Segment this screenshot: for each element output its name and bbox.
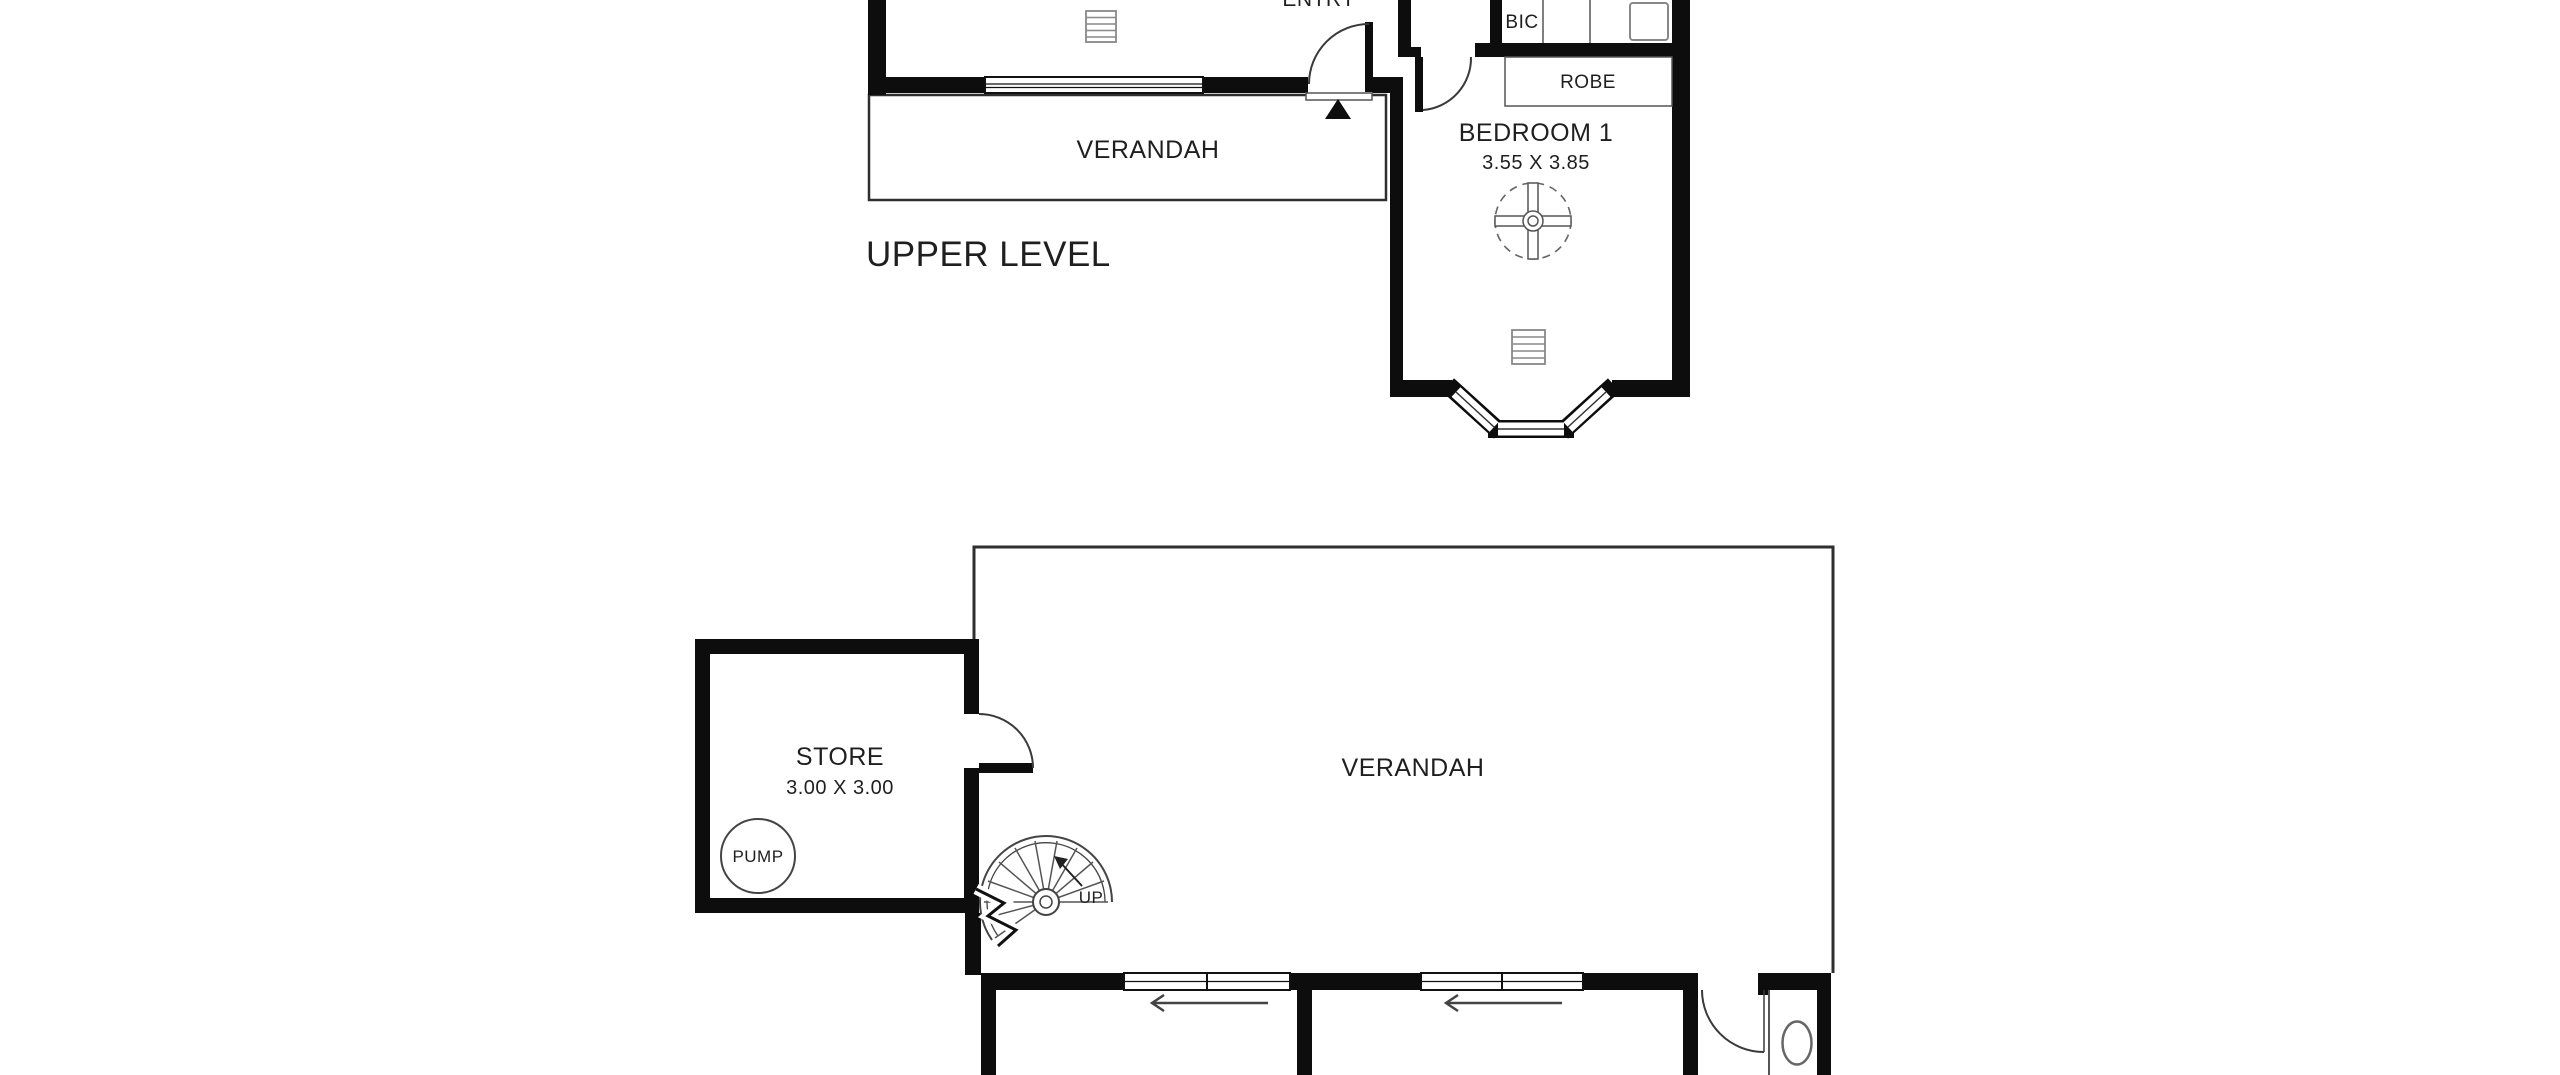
up-label: UP [1079,888,1104,907]
bic-fixture-square [1630,3,1668,40]
lower-door-arc [1702,990,1764,1052]
entry-bottom-wall-mid [1203,77,1308,93]
sliding-window-1 [1124,973,1290,990]
store-door-panel [979,763,1033,773]
floor-plan-drawing: ENTRY BIC ROBE BEDROOM 1 3.55 X 3.85 VER… [0,0,2560,1075]
entry-threshold [1306,93,1372,100]
lower-left-wall [981,990,996,1075]
lower-house-walls [981,973,1831,1075]
sliding-window-2 [1421,973,1583,990]
store-walls [695,639,1033,975]
upper-verandah-label: VERANDAH [1077,136,1220,164]
side-wall-below-store [965,913,981,975]
upper-level-plan: ENTRY BIC ROBE BEDROOM 1 3.55 X 3.85 VER… [866,0,1690,432]
entry-marker-triangle [1325,99,1351,119]
entry-landing-wall [1398,0,1411,57]
bedroom-door-arc [1423,57,1471,110]
lower-right-wall [1817,973,1831,1075]
toilet-oval [1783,1022,1812,1065]
upper-right-wall [1672,0,1690,397]
window-arrow-2 [1446,995,1562,1011]
ceiling-fan-icon [1495,183,1571,259]
bedroom-door-panel [1415,57,1423,112]
bay-window [1448,385,1614,432]
entry-label: ENTRY [1282,0,1355,11]
bay-left-wall [1390,380,1452,397]
bedroom1-dimensions: 3.55 X 3.85 [1482,152,1590,174]
entry-door-arc [1309,24,1369,84]
store-dimensions: 3.00 X 3.00 [786,777,894,799]
entry-bottom-wall-left [868,77,985,93]
pump-label: PUMP [732,847,783,866]
lower-verandah-label: VERANDAH [1342,754,1485,782]
bedroom1-label: BEDROOM 1 [1459,119,1614,147]
entry-window [985,77,1203,93]
entry-heater-symbol [1086,11,1116,42]
entry-door-panel [1365,22,1373,92]
bic-label: BIC [1505,12,1538,33]
upper-level-title: UPPER LEVEL [866,235,1111,274]
bedroom-heater-symbol [1512,330,1545,364]
upper-walls [868,0,1690,397]
lower-mid-wall [1297,990,1312,1075]
robe-label: ROBE [1560,72,1616,93]
lower-level-plan: STORE 3.00 X 3.00 PUMP UP VERANDAH [695,547,1833,1075]
bedroom-left-wall [1390,78,1403,397]
landing-wall-jog [1411,47,1421,57]
bay-right-wall [1612,380,1690,397]
store-label: STORE [796,743,884,771]
bic-left-wall [1490,0,1502,50]
store-door-arc [979,714,1033,768]
bic-bottom-wall [1475,43,1690,57]
window-arrow-1 [1152,995,1268,1011]
lower-right-room-wall [1683,990,1698,1075]
floor-plan-canvas: ENTRY BIC ROBE BEDROOM 1 3.55 X 3.85 VER… [0,0,2560,1075]
store-right-wall-top [964,639,979,714]
